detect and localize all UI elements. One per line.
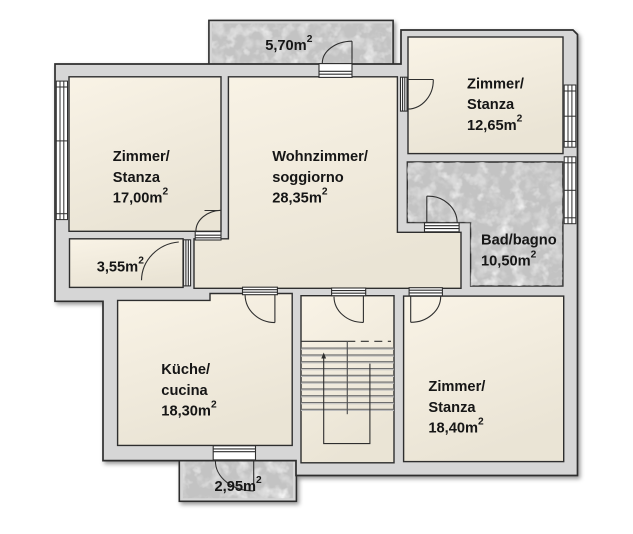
- svg-text:Stanza: Stanza: [113, 170, 161, 186]
- svg-text:soggiorno: soggiorno: [272, 170, 344, 186]
- svg-text:Stanza: Stanza: [467, 97, 515, 113]
- svg-text:Küche/: Küche/: [161, 362, 210, 378]
- svg-text:Bad/bagno: Bad/bagno: [481, 233, 557, 249]
- svg-text:Wohnzimmer/: Wohnzimmer/: [272, 149, 368, 165]
- svg-text:cucina: cucina: [161, 383, 208, 399]
- svg-text:Zimmer/: Zimmer/: [428, 379, 485, 395]
- svg-text:Stanza: Stanza: [428, 400, 476, 416]
- svg-text:Zimmer/: Zimmer/: [113, 149, 170, 165]
- svg-text:Zimmer/: Zimmer/: [467, 76, 524, 92]
